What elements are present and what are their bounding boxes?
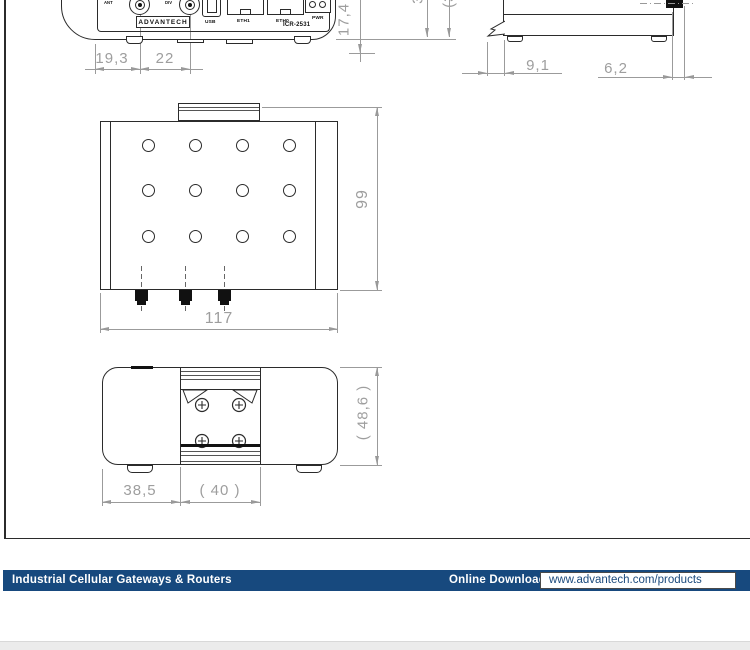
arrowhead bbox=[251, 500, 260, 504]
datasheet-dimension-drawing-page: ANT DIV ADVANTECH USB ETH1 ETH0 PWR ICR-… bbox=[0, 0, 750, 650]
dimension-value: 99 bbox=[354, 176, 372, 222]
arrowhead bbox=[95, 67, 104, 71]
front-connector bbox=[179, 290, 192, 301]
din-clip-hook bbox=[483, 18, 505, 40]
footer-category-label: Industrial Cellular Gateways & Routers bbox=[12, 574, 232, 586]
footer-url-text: www.advantech.com/products bbox=[549, 574, 702, 586]
arrowhead bbox=[375, 281, 379, 290]
din-channel-ridge bbox=[181, 455, 260, 456]
dimension-value: 9,1 bbox=[518, 57, 558, 74]
arrowhead bbox=[375, 456, 379, 465]
extension-line bbox=[262, 107, 382, 108]
top-edge-slot bbox=[131, 366, 153, 369]
arrowhead bbox=[100, 327, 109, 331]
ant-port-label: ANT bbox=[104, 1, 113, 5]
extension-line bbox=[684, 6, 685, 80]
dimension-value: 17,4 bbox=[336, 0, 353, 42]
power-terminal-screw bbox=[309, 1, 316, 8]
brand-logo-plate: ADVANTECH bbox=[136, 16, 190, 28]
pwr-port-label: PWR bbox=[312, 16, 324, 21]
side-body-outline bbox=[503, 0, 674, 36]
dimension-value: ( 40 ) bbox=[193, 482, 247, 499]
arrowhead bbox=[663, 75, 672, 79]
front-connector bbox=[135, 290, 148, 301]
arrowhead bbox=[425, 28, 429, 37]
model-name-label: ICR-2531 bbox=[283, 22, 310, 28]
dimension-value: 117 bbox=[190, 310, 248, 328]
din-channel-ridge bbox=[181, 375, 260, 376]
arrowhead bbox=[375, 367, 379, 376]
mounting-foot bbox=[507, 36, 523, 42]
div-port-label: DIV bbox=[165, 1, 172, 5]
vent-hole bbox=[236, 139, 249, 152]
vent-hole bbox=[142, 139, 155, 152]
dimension-value-cutoff: 30 bbox=[410, 0, 427, 13]
din-channel-ridge bbox=[181, 379, 260, 380]
din-rail-tab-line bbox=[179, 110, 259, 111]
extension-line bbox=[340, 290, 382, 291]
arrowhead bbox=[181, 67, 190, 71]
sma-div-connector-pin bbox=[188, 3, 192, 7]
mounting-foot bbox=[126, 36, 143, 44]
dimension-value-cutoff: (35) bbox=[441, 0, 458, 15]
extension-line bbox=[336, 39, 456, 40]
din-channel-ridge bbox=[181, 451, 260, 452]
usb-port-inner bbox=[207, 0, 217, 13]
mounting-foot bbox=[296, 465, 322, 473]
antenna-centerline bbox=[640, 3, 695, 4]
vent-hole bbox=[189, 184, 202, 197]
mounting-foot bbox=[294, 36, 311, 44]
dimension-value: ( 48,6 ) bbox=[355, 379, 372, 447]
din-clip-screws bbox=[189, 392, 251, 450]
power-terminal-screw bbox=[319, 1, 326, 8]
antenna-connector-side bbox=[666, 0, 683, 8]
dimension-line bbox=[100, 329, 338, 330]
vent-hole bbox=[142, 230, 155, 243]
page-frame-left-border bbox=[4, 0, 6, 539]
footer-download-label: Online Download bbox=[449, 574, 546, 586]
arrowhead bbox=[102, 500, 111, 504]
mounting-foot bbox=[127, 465, 153, 473]
front-connector bbox=[137, 301, 146, 305]
din-clip-bar bbox=[181, 444, 260, 447]
vent-hole bbox=[142, 184, 155, 197]
vent-hole bbox=[283, 184, 296, 197]
extension-line bbox=[672, 12, 673, 80]
vent-hole bbox=[236, 184, 249, 197]
arrowhead bbox=[329, 327, 338, 331]
vent-hole bbox=[189, 230, 202, 243]
side-body-midline bbox=[503, 14, 674, 15]
extension-line bbox=[487, 42, 488, 76]
connector-centerline bbox=[141, 266, 142, 312]
front-connector bbox=[181, 301, 190, 305]
eth1-port-latch bbox=[240, 9, 251, 15]
arrowhead bbox=[171, 500, 180, 504]
din-rail-tab-line bbox=[179, 107, 259, 108]
arrowhead bbox=[140, 67, 149, 71]
page-bottom-edge bbox=[0, 641, 750, 650]
arrowhead bbox=[685, 75, 694, 79]
dimension-value: 38,5 bbox=[105, 482, 175, 499]
dimension-value: 19,3 bbox=[88, 50, 136, 67]
arrowhead bbox=[131, 67, 140, 71]
bottom-tab bbox=[177, 39, 204, 43]
vent-hole bbox=[283, 139, 296, 152]
dimension-value: 6,2 bbox=[600, 60, 632, 77]
front-connector bbox=[218, 290, 231, 301]
connector-centerline bbox=[185, 266, 186, 312]
usb-port-label: USB bbox=[205, 20, 216, 25]
arrowhead bbox=[447, 28, 451, 37]
dimension-line bbox=[377, 367, 378, 465]
mounting-foot bbox=[651, 36, 667, 42]
dimension-value: 22 bbox=[142, 50, 188, 67]
vent-hole bbox=[236, 230, 249, 243]
top-body-outline bbox=[100, 121, 338, 290]
page-frame-bottom-border bbox=[4, 538, 750, 540]
arrowhead bbox=[375, 107, 379, 116]
sma-ant-connector-pin bbox=[138, 3, 142, 7]
extension-line bbox=[340, 465, 382, 466]
din-channel-line bbox=[260, 368, 261, 465]
din-channel-ridge bbox=[181, 371, 260, 372]
vent-hole bbox=[189, 139, 202, 152]
dimension-line bbox=[377, 107, 378, 290]
din-channel-ridge bbox=[181, 461, 260, 462]
front-connector bbox=[220, 301, 229, 305]
side-wall-line bbox=[315, 122, 316, 289]
vent-hole bbox=[283, 230, 296, 243]
arrowhead bbox=[505, 71, 514, 75]
arrowhead bbox=[181, 500, 190, 504]
extension-line bbox=[260, 467, 261, 506]
arrowhead bbox=[478, 71, 487, 75]
eth0-port-latch bbox=[280, 9, 291, 15]
extension-line bbox=[349, 53, 375, 54]
dimension-line bbox=[598, 77, 712, 78]
connector-centerline bbox=[224, 266, 225, 312]
din-rail-tab bbox=[178, 103, 260, 121]
arrowhead bbox=[358, 44, 362, 53]
eth1-port-label: ETH1 bbox=[237, 19, 250, 24]
side-wall-line bbox=[110, 122, 111, 289]
bottom-tab bbox=[226, 39, 253, 44]
